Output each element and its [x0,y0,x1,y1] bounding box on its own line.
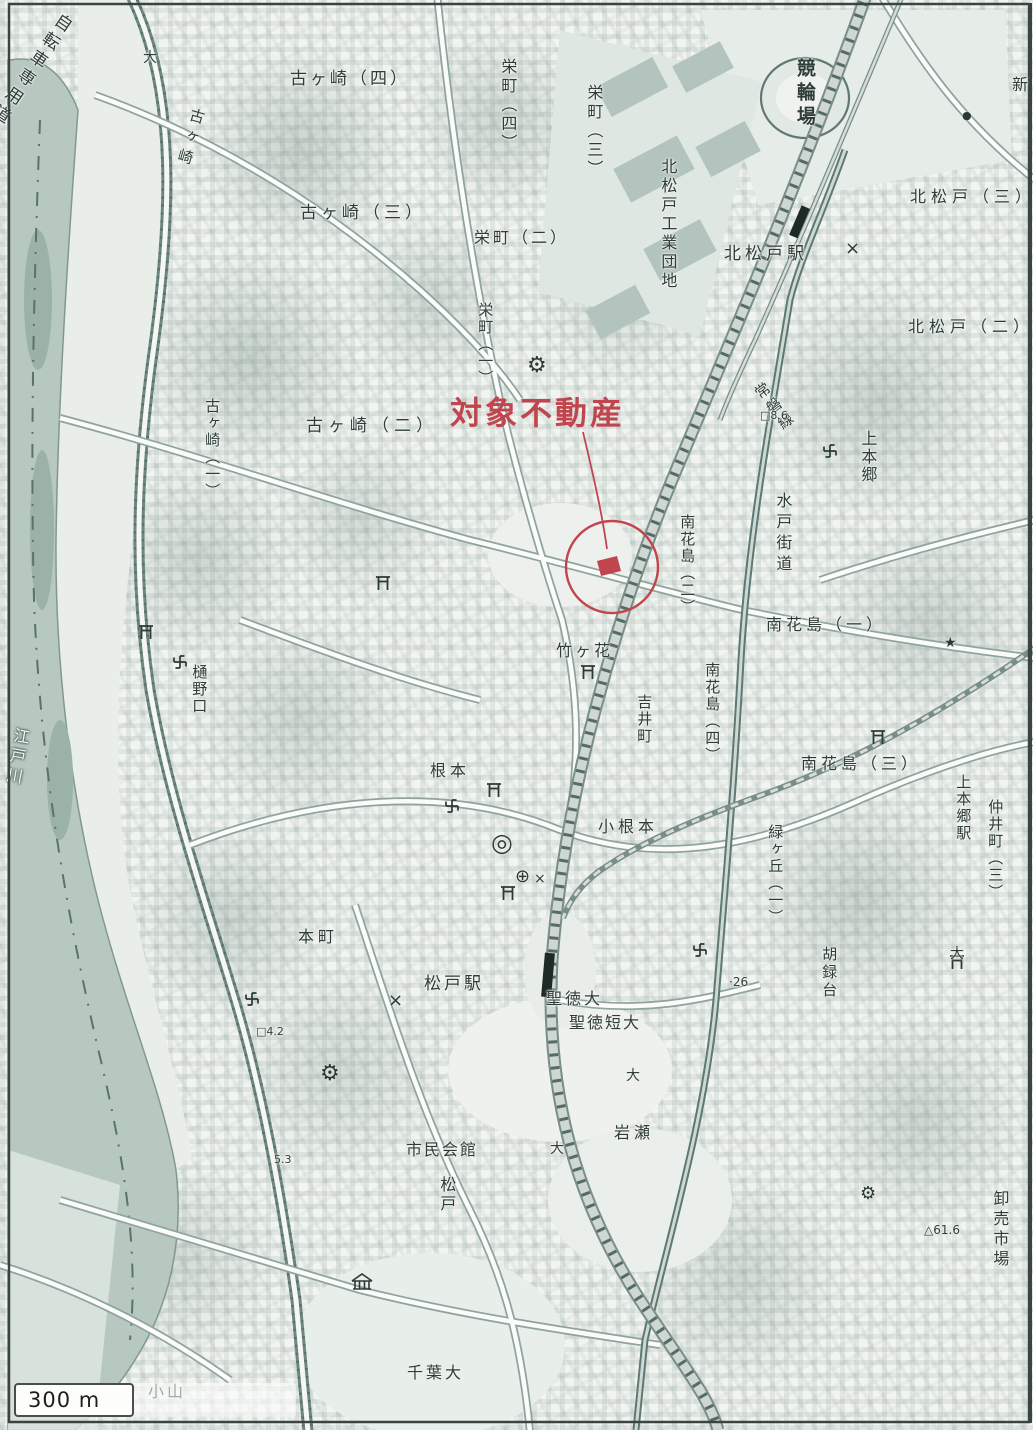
river-marsh-3 [47,720,73,840]
subject-property-label: 対象不動産 [450,388,625,434]
river-marsh-2 [30,450,54,610]
scale-bar: 300 m [14,1383,134,1417]
shinkeisei-line-railway [563,648,1033,918]
river-marsh-1 [24,230,52,370]
target-area-clearing [488,503,632,607]
mito-kaido-road [636,150,845,1430]
map-sheet: 自転車専用道路古ヶ崎古ヶ崎（四）栄町（四）栄町（三）古ヶ崎（三）栄町（二）栄町（… [0,0,1033,1430]
map-graphics [0,0,1033,1430]
scale-bar-label: 300 m [28,1388,100,1412]
